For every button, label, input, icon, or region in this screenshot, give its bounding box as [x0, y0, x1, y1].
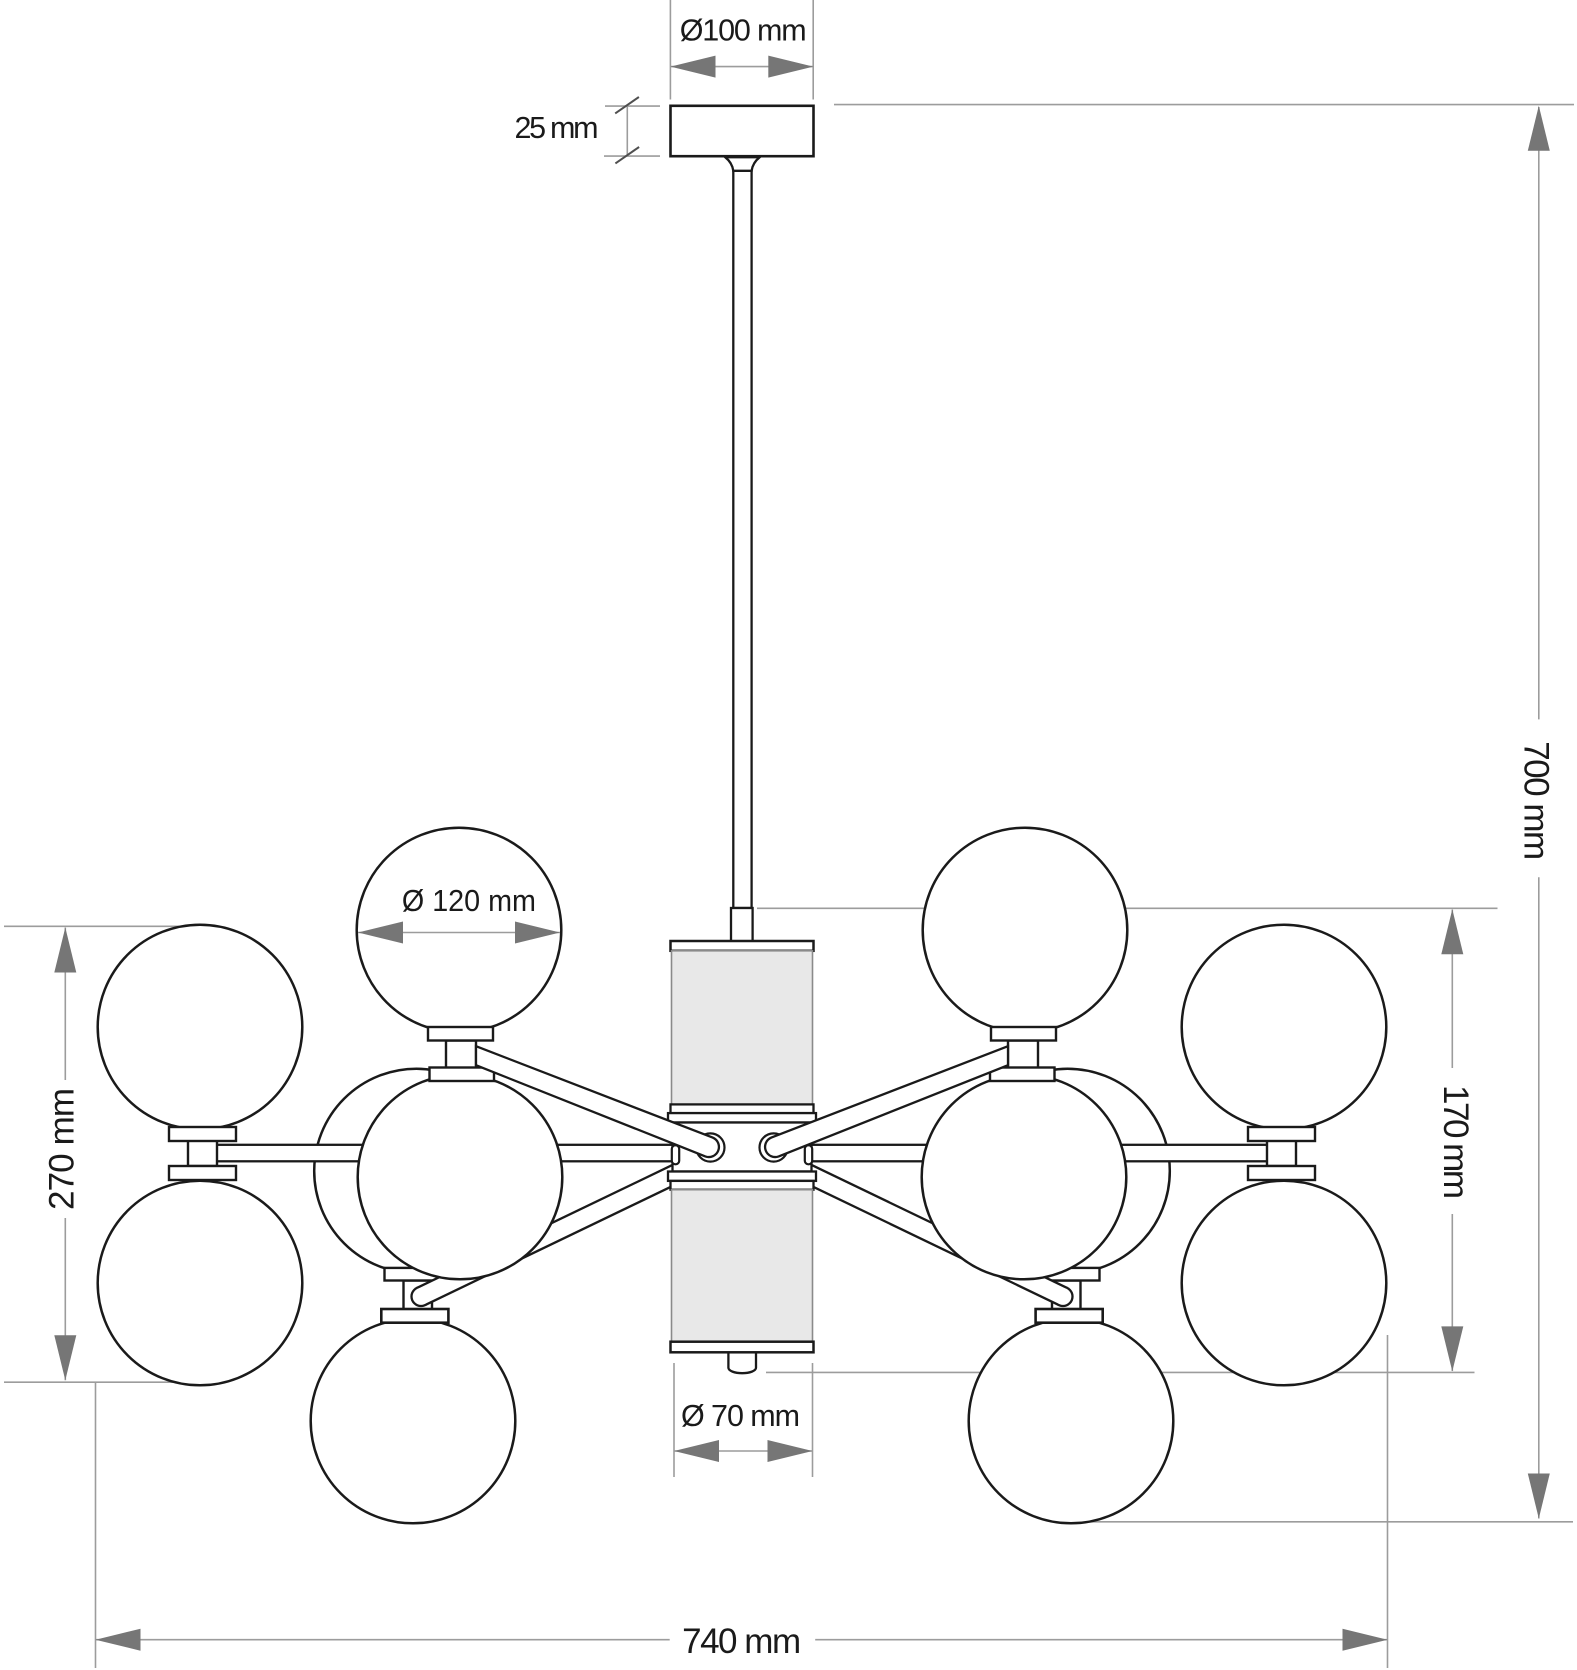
svg-text:170 mm: 170 mm — [1436, 1085, 1475, 1199]
svg-text:25 mm: 25 mm — [515, 111, 599, 145]
svg-text:740 mm: 740 mm — [682, 1622, 801, 1661]
svg-text:Ø 70 mm: Ø 70 mm — [681, 1399, 800, 1433]
svg-text:Ø 120 mm: Ø 120 mm — [402, 884, 536, 918]
svg-text:700 mm: 700 mm — [1517, 741, 1556, 860]
svg-text:270 mm: 270 mm — [43, 1088, 82, 1210]
svg-text:Ø100 mm: Ø100 mm — [680, 13, 807, 47]
